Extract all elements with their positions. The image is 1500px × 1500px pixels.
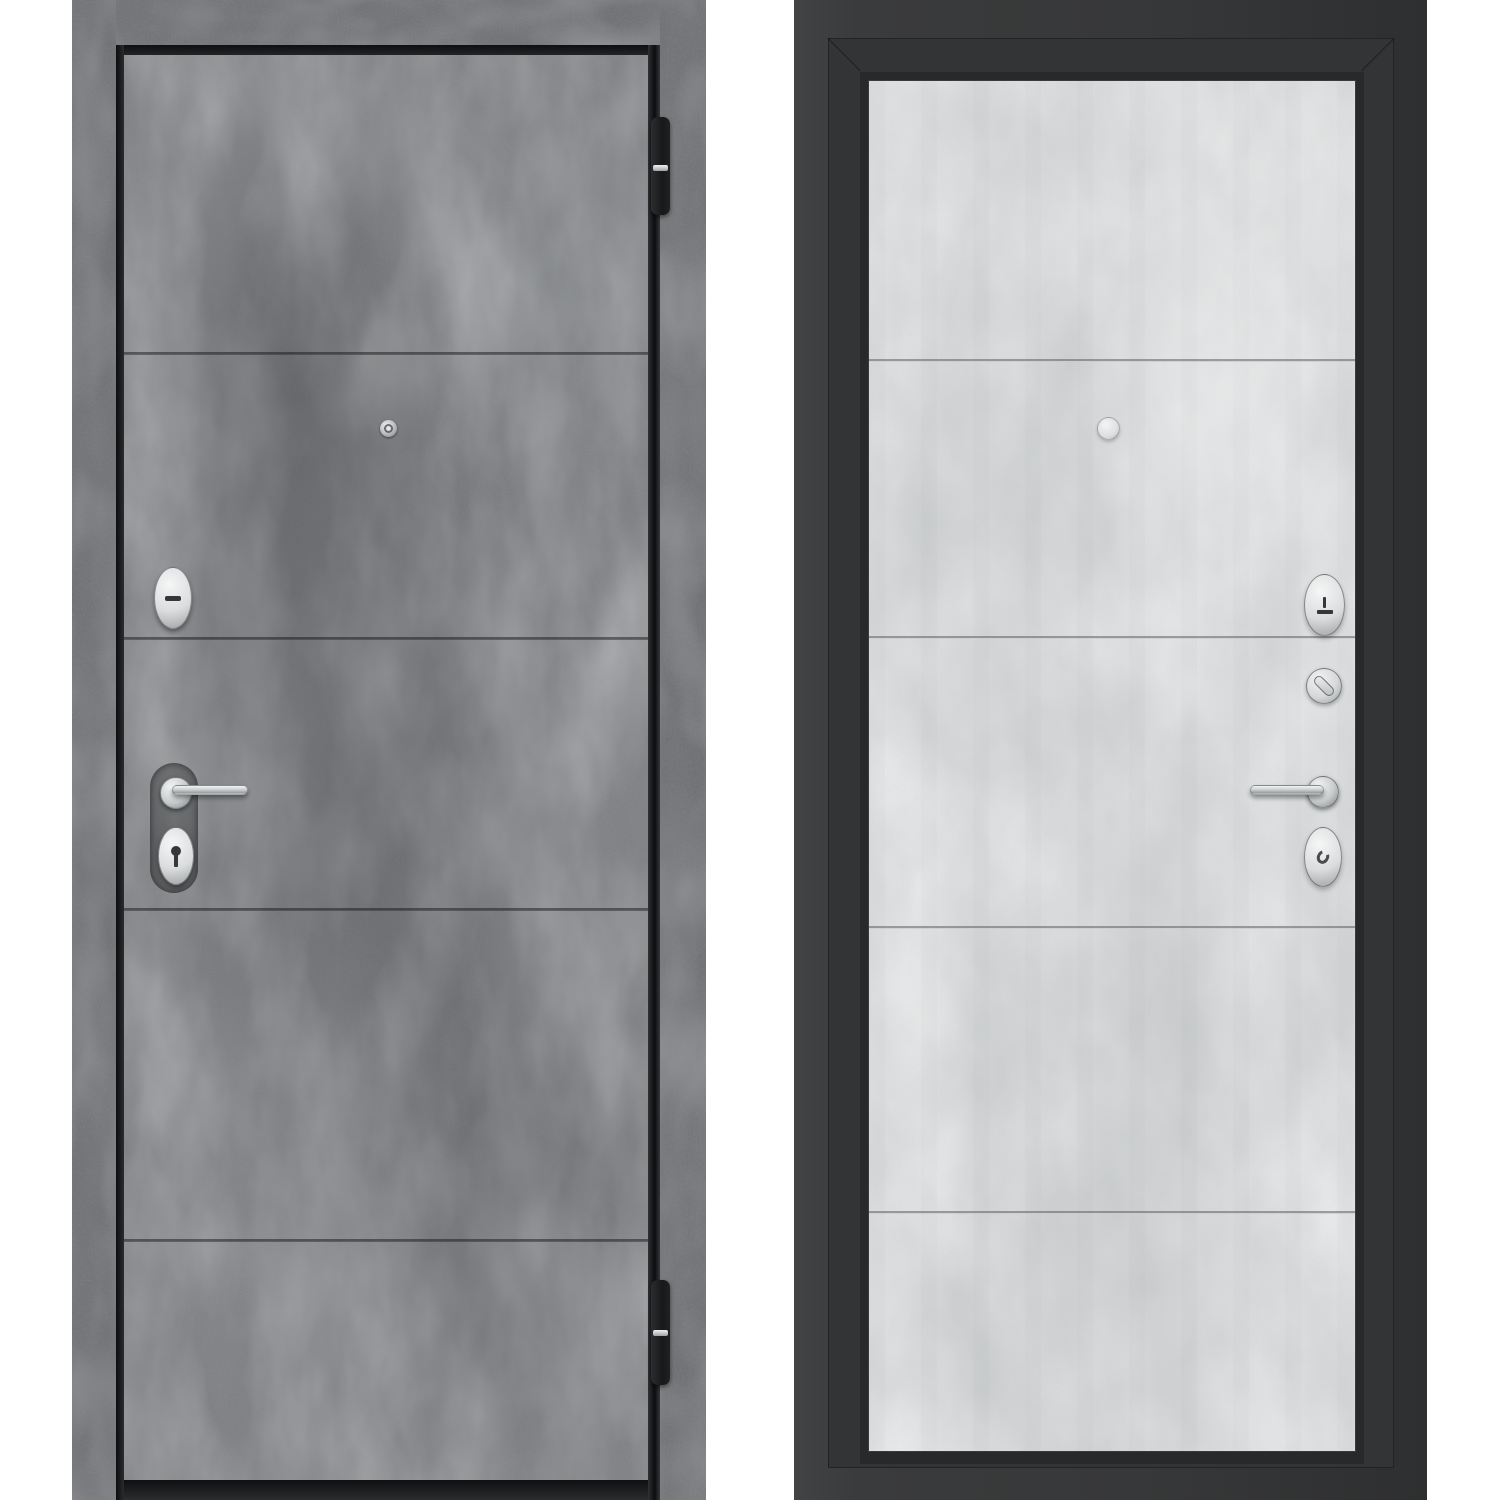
panel-seam [869, 359, 1355, 362]
peephole-cover [1097, 417, 1120, 440]
interior-door-leaf [868, 80, 1356, 1452]
concrete-smudges [869, 81, 1355, 1451]
lock-escutcheon [1304, 574, 1345, 636]
lock-indicator-icon [1323, 597, 1326, 608]
thumbturn-bar [1312, 674, 1336, 698]
interior-door-view[interactable] [0, 0, 1500, 1500]
panel-seam [869, 636, 1355, 639]
lock-indicator-icon [1317, 610, 1333, 614]
door-product-photo [0, 0, 1500, 1500]
cylinder-escutcheon [1304, 827, 1342, 887]
lever-handle[interactable] [1250, 785, 1324, 795]
thumbturn[interactable] [1306, 668, 1342, 704]
keyhole-icon [1314, 848, 1331, 866]
panel-seam [869, 1211, 1355, 1214]
panel-seam [869, 926, 1355, 929]
